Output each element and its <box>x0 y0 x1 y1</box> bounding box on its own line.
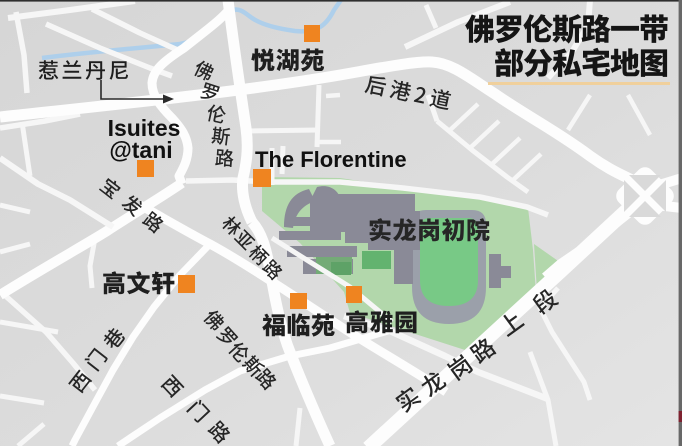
svg-text:The Florentine: The Florentine <box>255 147 407 172</box>
svg-text:@tani: @tani <box>109 137 172 163</box>
